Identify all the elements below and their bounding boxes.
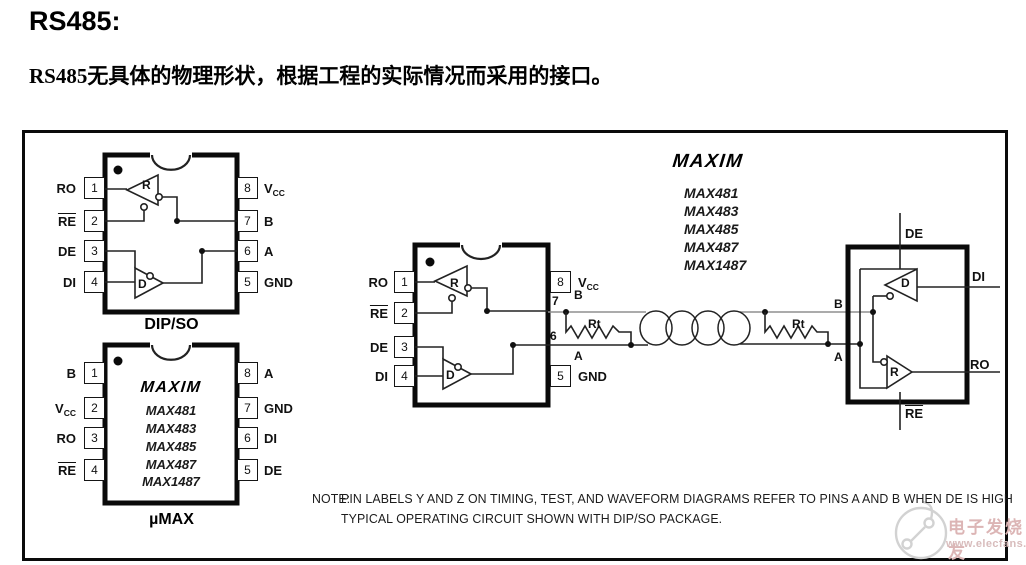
dip-pin8-label: VCC xyxy=(264,181,285,196)
dip-pin5-label: GND xyxy=(264,275,293,290)
umax-pin4-box: 4 xyxy=(84,459,105,481)
ic1-pin4-label: DI xyxy=(352,369,388,384)
umax-pin2-box: 2 xyxy=(84,397,105,419)
note-line2: TYPICAL OPERATING CIRCUIT SHOWN WITH DIP… xyxy=(341,511,722,526)
umax-caption: µMAX xyxy=(120,511,223,529)
dip-pin7-box: 7 xyxy=(237,210,258,232)
watermark-site-url: www.elecfans.com xyxy=(946,538,1026,550)
umax-pin4-label: RE xyxy=(40,463,76,478)
ic1-pin4-box: 4 xyxy=(394,365,415,387)
umax-part-5: MAX1487 xyxy=(110,474,232,489)
circuit-part-3: MAX485 xyxy=(684,221,738,237)
dip-pin2-label: RE xyxy=(40,214,76,229)
circuit-part-1: MAX481 xyxy=(684,185,738,201)
umax-part-3: MAX485 xyxy=(110,439,232,454)
ic1-pin8-box: 8 xyxy=(550,271,571,293)
umax-pin5-box: 5 xyxy=(237,459,258,481)
document-page: RS485: RS485无具体的物理形状，根据工程的实际情况而采用的接口。 xyxy=(0,0,1026,565)
rt2-label: Rt xyxy=(792,317,805,331)
body-paragraph: RS485无具体的物理形状，根据工程的实际情况而采用的接口。 xyxy=(29,60,612,90)
circuit-brand-logo: MAXIM xyxy=(647,151,769,173)
umax-part-4: MAX487 xyxy=(110,457,232,472)
umax-pin7-box: 7 xyxy=(237,397,258,419)
ic1-a-label: A xyxy=(574,349,583,363)
bus-b-label: B xyxy=(834,297,843,311)
umax-pin1-box: 1 xyxy=(84,362,105,384)
ic1-driver-label: D xyxy=(446,368,455,382)
rt1-label: Rt xyxy=(588,317,601,331)
dip-pin4-box: 4 xyxy=(84,271,105,293)
ic1-b-label: B xyxy=(574,288,583,302)
dip-pin2-box: 2 xyxy=(84,210,105,232)
ic1-pin5-box: 5 xyxy=(550,365,571,387)
ic1-pin2-box: 2 xyxy=(394,302,415,324)
umax-pin3-box: 3 xyxy=(84,427,105,449)
ic2-re-label: RE xyxy=(905,406,923,421)
umax-part-1: MAX481 xyxy=(110,403,232,418)
umax-part-2: MAX483 xyxy=(110,421,232,436)
dip-pin3-box: 3 xyxy=(84,240,105,262)
ic2-ro-label: RO xyxy=(970,357,990,372)
dip-pin6-label: A xyxy=(264,244,273,259)
dip-pin1-box: 1 xyxy=(84,177,105,199)
ic1-pin3-box: 3 xyxy=(394,336,415,358)
ic1-pin1-box: 1 xyxy=(394,271,415,293)
ic1-receiver-label: R xyxy=(450,276,459,290)
bus-a-label: A xyxy=(834,350,843,364)
ic1-pin6-number: 6 xyxy=(550,329,557,343)
umax-pin5-label: DE xyxy=(264,463,282,478)
ic2-di-label: DI xyxy=(972,269,985,284)
umax-pin8-label: A xyxy=(264,366,273,381)
dip-caption: DIP/SO xyxy=(120,316,223,334)
dip-pin8-box: 8 xyxy=(237,177,258,199)
dip-pin4-label: DI xyxy=(40,275,76,290)
ic2-de-label: DE xyxy=(905,226,923,241)
umax-pin2-label: VCC xyxy=(30,401,76,416)
dip-receiver-label: R xyxy=(142,178,151,192)
ic1-pin2-label: RE xyxy=(352,306,388,321)
dip-pin7-label: B xyxy=(264,214,273,229)
ic1-pin1-label: RO xyxy=(352,275,388,290)
circuit-part-4: MAX487 xyxy=(684,239,738,255)
umax-brand-logo: MAXIM xyxy=(109,379,233,397)
circuit-part-2: MAX483 xyxy=(684,203,738,219)
umax-pin3-label: RO xyxy=(40,431,76,446)
dip-driver-label: D xyxy=(138,277,147,291)
ic1-pin7-number: 7 xyxy=(552,294,559,308)
note-line1: PIN LABELS Y AND Z ON TIMING, TEST, AND … xyxy=(341,491,1013,506)
ic1-pin3-label: DE xyxy=(352,340,388,355)
dip-pin3-label: DE xyxy=(40,244,76,259)
umax-pin1-label: B xyxy=(40,366,76,381)
dip-pin1-label: RO xyxy=(40,181,76,196)
dip-pin6-box: 6 xyxy=(237,240,258,262)
ic1-pin5-label: GND xyxy=(578,369,607,384)
umax-pin6-label: DI xyxy=(264,431,277,446)
ic2-receiver-label: R xyxy=(890,365,899,379)
circuit-part-5: MAX1487 xyxy=(684,257,746,273)
page-title: RS485: xyxy=(29,6,121,37)
umax-pin7-label: GND xyxy=(264,401,293,416)
dip-pin5-box: 5 xyxy=(237,271,258,293)
umax-pin6-box: 6 xyxy=(237,427,258,449)
umax-pin8-box: 8 xyxy=(237,362,258,384)
ic2-driver-label: D xyxy=(901,276,910,290)
